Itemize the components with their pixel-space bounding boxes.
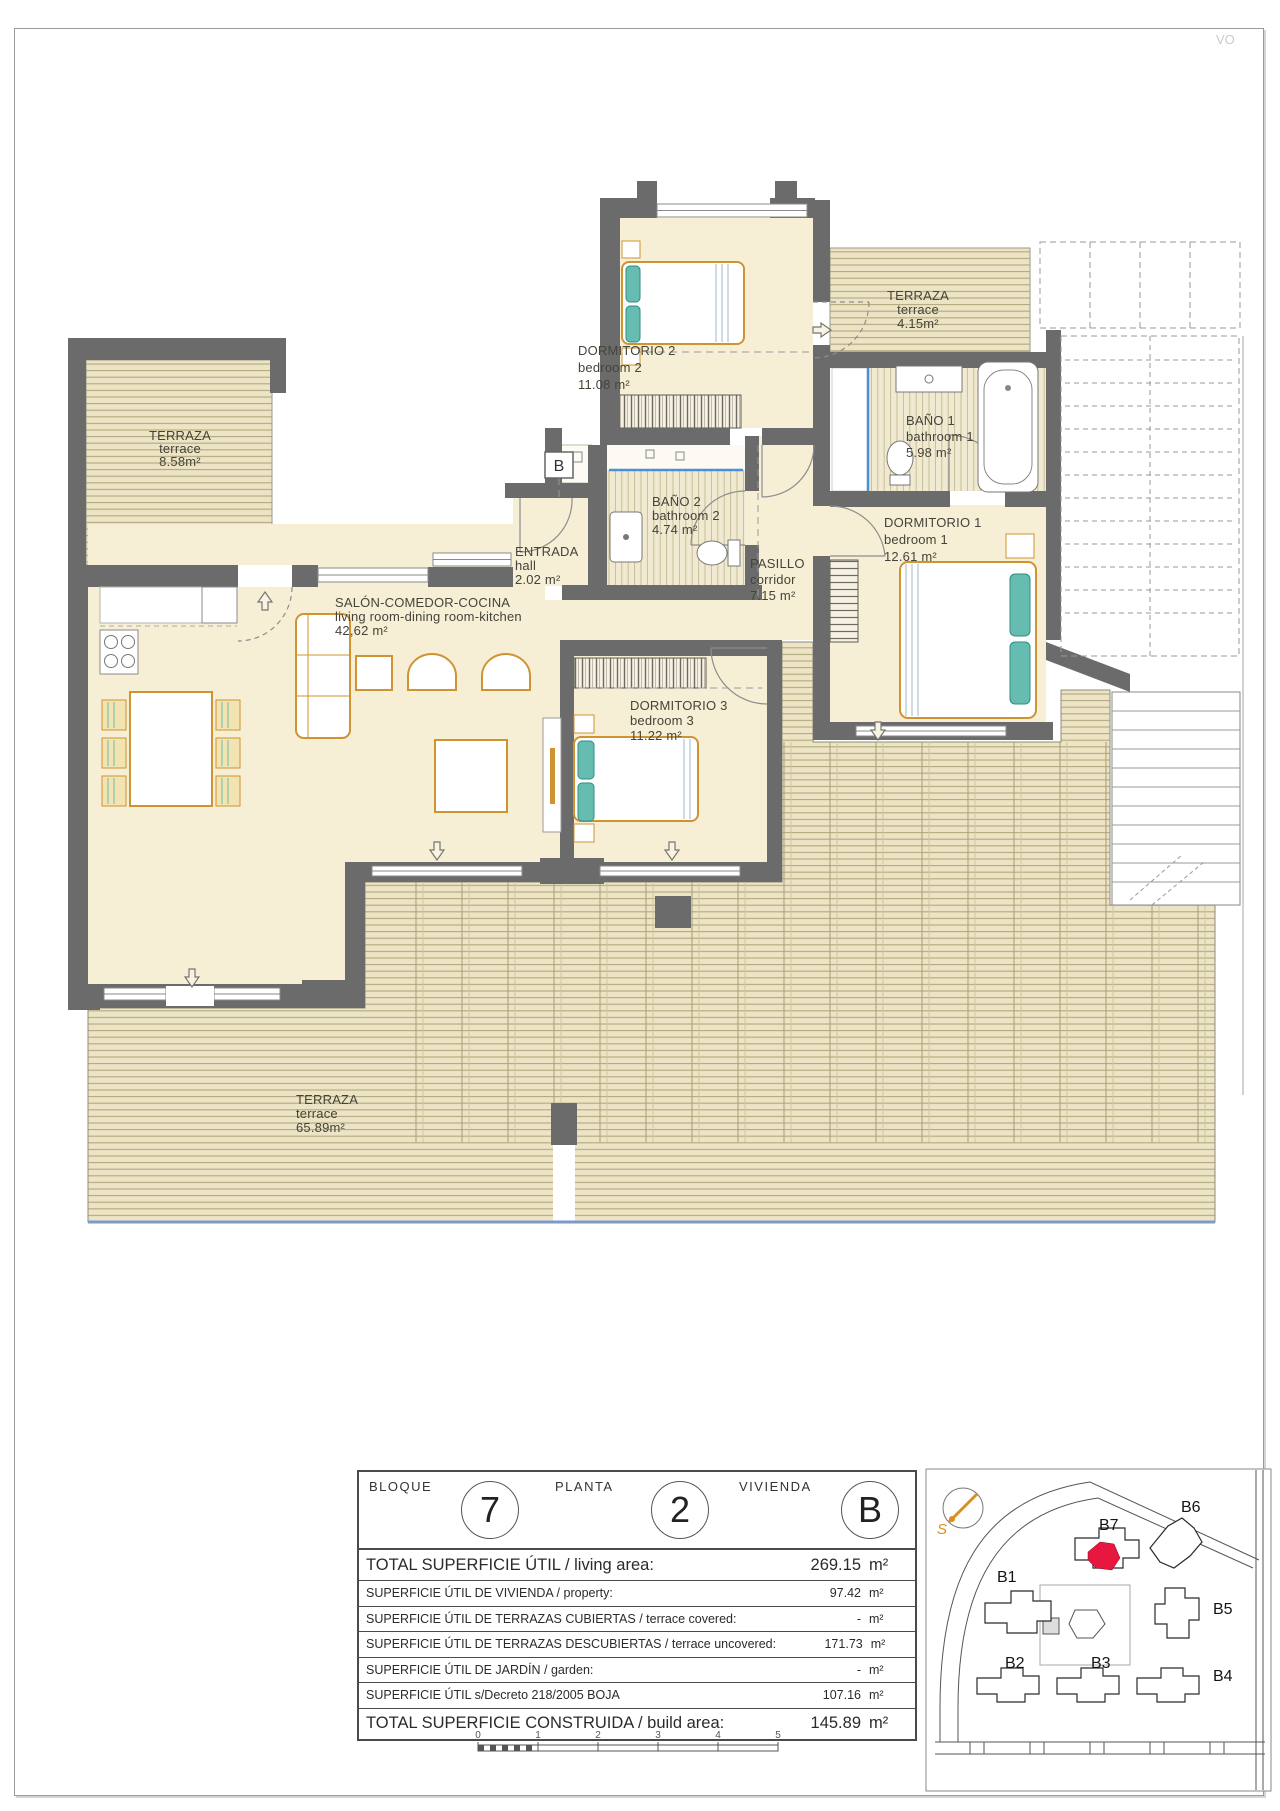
planta-label: PLANTA [555,1479,614,1494]
svg-text:4.74 m²: 4.74 m² [652,522,698,537]
wardrobe-bedroom3 [574,658,706,688]
bathtub-icon [978,362,1038,492]
stairs [1112,692,1240,905]
svg-text:8.58m²: 8.58m² [159,454,201,469]
svg-text:bathroom 2: bathroom 2 [652,508,720,523]
summary-rows: TOTAL SUPERFICIE ÚTIL / living area:269.… [357,1550,917,1741]
svg-text:TERRAZA: TERRAZA [296,1092,358,1107]
summary-header: BLOQUE 7 PLANTA 2 VIVIENDA B [357,1470,917,1550]
svg-text:3: 3 [655,1730,661,1741]
summary-table: BLOQUE 7 PLANTA 2 VIVIENDA B TOTAL SUPER… [357,1470,917,1741]
svg-text:terrace: terrace [296,1106,338,1121]
section-marker-label: B [554,458,565,475]
svg-text:terrace: terrace [897,302,939,317]
svg-text:11.22 m²: 11.22 m² [630,728,682,743]
svg-text:4.15m²: 4.15m² [897,316,939,331]
table-row: SUPERFICIE ÚTIL s/Decreto 218/2005 BOJA1… [359,1682,915,1708]
svg-text:hall: hall [515,558,536,573]
site-label-b7: B7 [1099,1517,1119,1534]
svg-text:0: 0 [475,1730,481,1741]
table-row: TOTAL SUPERFICIE ÚTIL / living area:269.… [359,1550,915,1580]
svg-text:4: 4 [715,1730,721,1741]
svg-text:DORMITORIO 3: DORMITORIO 3 [630,698,728,713]
site-label-b3: B3 [1091,1655,1111,1672]
svg-text:bathroom 1: bathroom 1 [906,429,974,444]
svg-text:65.89m²: 65.89m² [296,1120,346,1135]
svg-text:BAÑO 2: BAÑO 2 [652,494,701,509]
svg-text:2.02 m²: 2.02 m² [515,572,561,587]
svg-text:11.08 m²: 11.08 m² [578,377,630,392]
site-label-b6: B6 [1181,1499,1201,1516]
planta-value: 2 [651,1481,709,1539]
coffee-table-icon [435,740,507,812]
svg-text:ENTRADA: ENTRADA [515,544,579,559]
wardrobe-bedroom1 [830,560,858,642]
site-label-b1: B1 [997,1569,1017,1586]
svg-text:bedroom 1: bedroom 1 [884,532,948,547]
table-row: SUPERFICIE ÚTIL DE VIVIENDA / property:9… [359,1580,915,1606]
armchair-icon [482,654,530,690]
wardrobe-bedroom2 [617,395,741,428]
svg-text:bedroom 3: bedroom 3 [630,713,694,728]
floor-plan-drawing: B DORMITORIO 2bedroom 211.08 m² TERRAZAt… [0,0,1280,1260]
svg-text:bedroom 2: bedroom 2 [578,360,642,375]
svg-text:DORMITORIO 1: DORMITORIO 1 [884,515,982,530]
site-label-b5: B5 [1213,1601,1233,1618]
site-plan: S B1 B2 B3 B4 B5 B6 B7 [925,1468,1272,1797]
tv-unit-icon [543,718,561,832]
section-marker: B [545,452,573,478]
sink1-icon [896,366,962,392]
vivienda-value: B [841,1481,899,1539]
svg-text:SALÓN-COMEDOR-COCINA: SALÓN-COMEDOR-COCINA [335,595,510,610]
svg-text:PASILLO: PASILLO [750,556,805,571]
site-label-b2: B2 [1005,1655,1025,1672]
bloque-value: 7 [461,1481,519,1539]
svg-text:7.15 m²: 7.15 m² [750,588,796,603]
terrace-door-arrow [813,323,831,337]
side-table-icon [356,656,392,690]
svg-text:corridor: corridor [750,572,796,587]
svg-text:5.98 m²: 5.98 m² [906,445,952,460]
sink2-icon [610,512,642,562]
svg-text:DORMITORIO 2: DORMITORIO 2 [578,343,676,358]
scale-bar: 0 1 2 3 4 5 [468,1728,798,1764]
svg-text:BAÑO 1: BAÑO 1 [906,413,955,428]
svg-text:living room-dining room-kitche: living room-dining room-kitchen [335,609,522,624]
svg-text:5: 5 [775,1730,781,1741]
site-label-b4: B4 [1213,1668,1233,1685]
svg-text:42,62 m²: 42,62 m² [335,623,388,638]
svg-text:2: 2 [595,1730,601,1741]
armchair-icon [408,654,456,690]
table-row: SUPERFICIE ÚTIL DE TERRAZAS CUBIERTAS / … [359,1606,915,1632]
bloque-label: BLOQUE [369,1479,432,1494]
dining-table-icon [102,692,240,806]
deck-joint-gap [553,1145,575,1222]
table-row: SUPERFICIE ÚTIL DE TERRAZAS DESCUBIERTAS… [359,1631,915,1657]
floor-plan-sheet: VO [0,0,1280,1811]
compass-label: S [937,1521,947,1538]
svg-text:12.61 m²: 12.61 m² [884,549,937,564]
svg-text:TERRAZA: TERRAZA [887,288,949,303]
toilet2-icon [697,540,740,566]
vivienda-label: VIVIENDA [739,1479,812,1494]
svg-text:1: 1 [535,1730,541,1741]
table-row: SUPERFICIE ÚTIL DE JARDÍN / garden:-m² [359,1657,915,1683]
bath1-shower-area [832,368,868,491]
